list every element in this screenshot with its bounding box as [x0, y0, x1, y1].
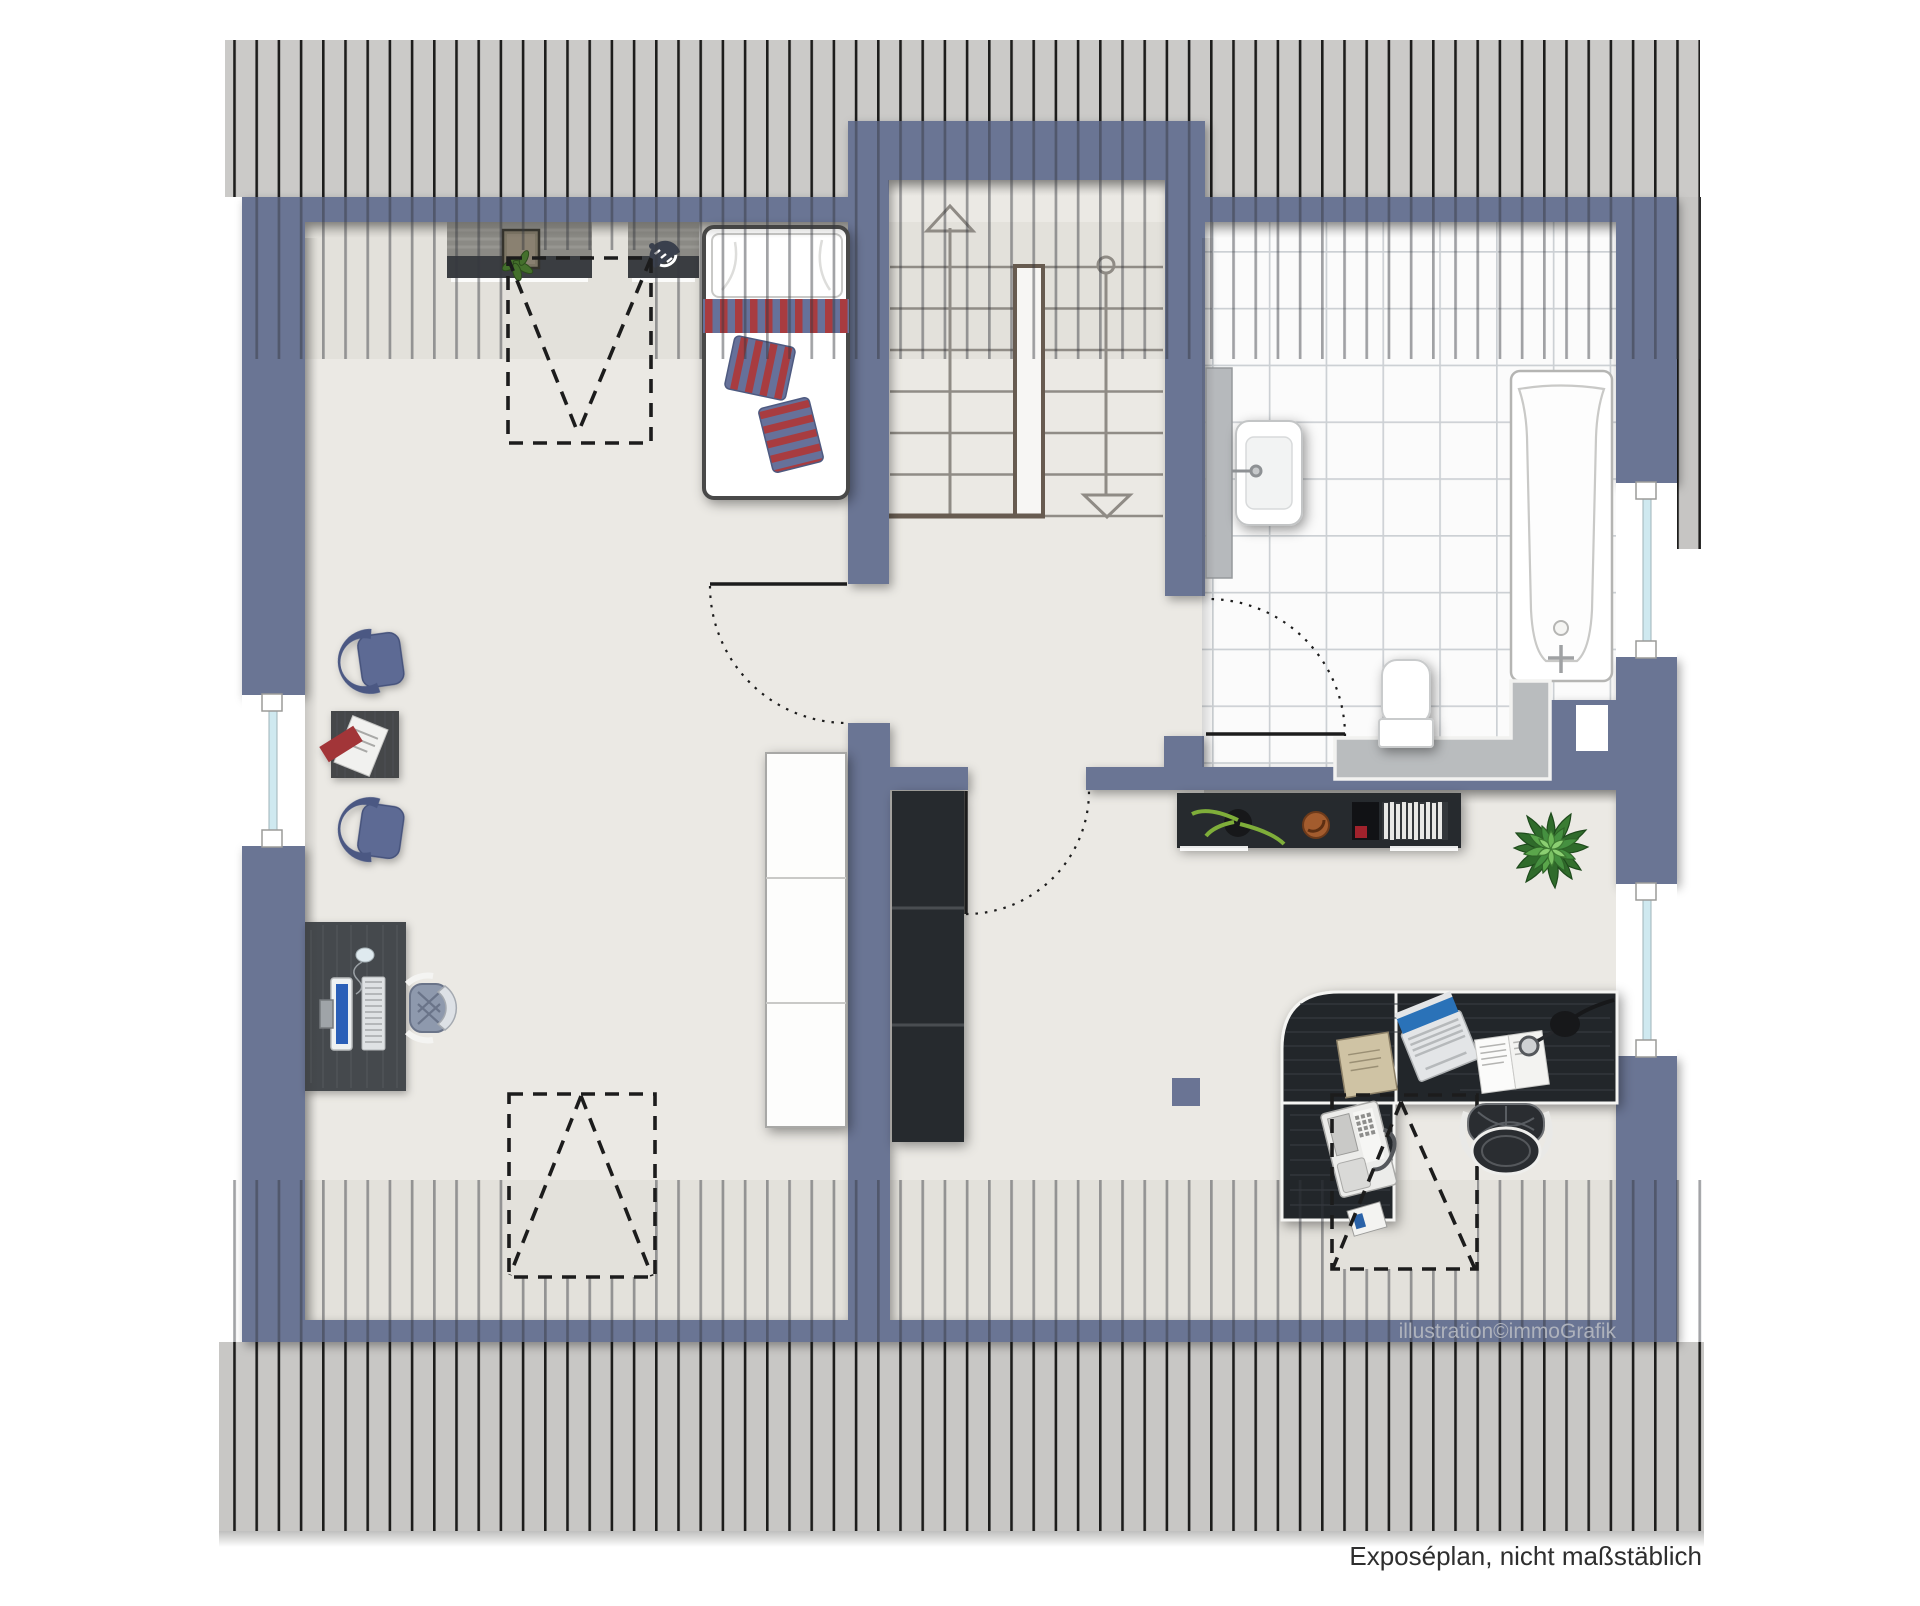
svg-text:illustration©immoGrafik: illustration©immoGrafik	[1399, 1320, 1617, 1343]
svg-text:Exposéplan, nicht maßstäblich: Exposéplan, nicht maßstäblich	[1349, 1541, 1702, 1571]
